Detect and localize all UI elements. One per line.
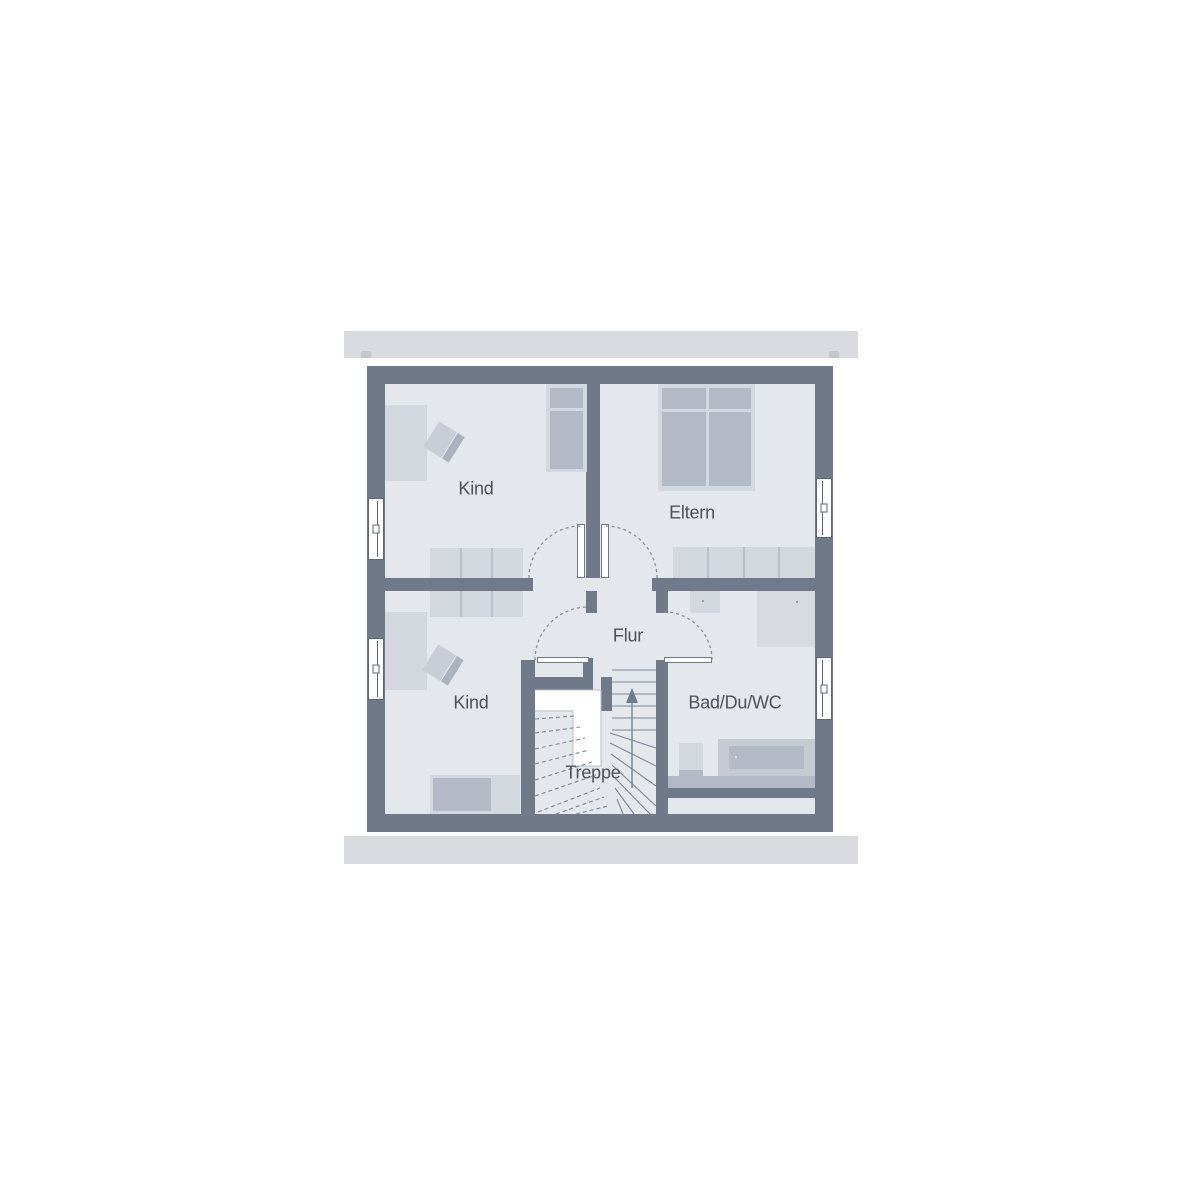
- window-right-top: [816, 478, 832, 538]
- desk: [385, 612, 427, 690]
- window-right-bottom: [816, 657, 832, 720]
- room-label-kind-bottom: Kind: [453, 693, 488, 714]
- single-bed-mattress: [550, 411, 583, 469]
- shower: [757, 591, 815, 647]
- roof-eave-top-nub-right: [829, 351, 839, 358]
- single-bed-pillow: [495, 778, 519, 811]
- bathtub-drain-dot: [735, 756, 737, 758]
- wall-stub-center: [586, 591, 597, 613]
- wall-outer-left: [367, 366, 385, 832]
- roof-eave-top-nub-left: [361, 351, 371, 358]
- washbasin-drain-dot: [702, 600, 704, 602]
- single-bed-mattress: [433, 778, 491, 811]
- roof-eave-top: [344, 331, 858, 358]
- wardrobe: [430, 548, 523, 578]
- door-leaf-eltern: [601, 524, 609, 578]
- stair-landing-vertical: [573, 711, 601, 766]
- room-label-eltern: Eltern: [669, 503, 715, 524]
- door-leaf-flur-left: [537, 657, 589, 663]
- roof-eave-bottom: [344, 836, 858, 864]
- desk: [385, 405, 427, 481]
- door-leaf-bath: [664, 657, 712, 663]
- double-bed-mattress-left: [662, 412, 706, 486]
- stair-landing-horizontal: [535, 690, 601, 711]
- wall-middle-left: [385, 578, 533, 591]
- room-label-treppe: Treppe: [565, 763, 620, 784]
- door-leaf-kind-top: [577, 524, 585, 578]
- wall-bath-bottom: [668, 788, 815, 798]
- double-bed-pillow-right: [709, 388, 751, 409]
- double-bed-mattress-right: [709, 412, 751, 486]
- toilet-base: [679, 770, 703, 783]
- washbasin: [690, 591, 720, 613]
- wall-stair-landing-right: [601, 677, 612, 711]
- wardrobe: [673, 547, 815, 578]
- wall-outer-right: [815, 366, 833, 832]
- wall-stub-bath: [656, 591, 668, 613]
- floor-plan-canvas: Kind Eltern Kind Flur Treppe Bad/Du/WC: [0, 0, 1200, 1200]
- wall-outer-top: [367, 366, 833, 384]
- wall-outer-bottom: [367, 814, 833, 832]
- room-label-flur: Flur: [613, 626, 643, 647]
- room-label-bad: Bad/Du/WC: [688, 693, 781, 714]
- wall-center-vertical: [586, 384, 600, 578]
- wall-bath-left: [656, 660, 668, 814]
- window-left-top: [368, 498, 384, 560]
- room-label-kind-top: Kind: [458, 479, 493, 500]
- wardrobe: [430, 591, 523, 617]
- bathtub-inner: [729, 746, 804, 769]
- window-left-bottom: [368, 638, 384, 700]
- toilet-tank: [679, 743, 703, 772]
- double-bed-pillow-left: [662, 388, 706, 409]
- shower-drain-dot: [796, 601, 798, 603]
- wall-middle-right: [652, 578, 815, 591]
- single-bed-pillow: [550, 388, 583, 408]
